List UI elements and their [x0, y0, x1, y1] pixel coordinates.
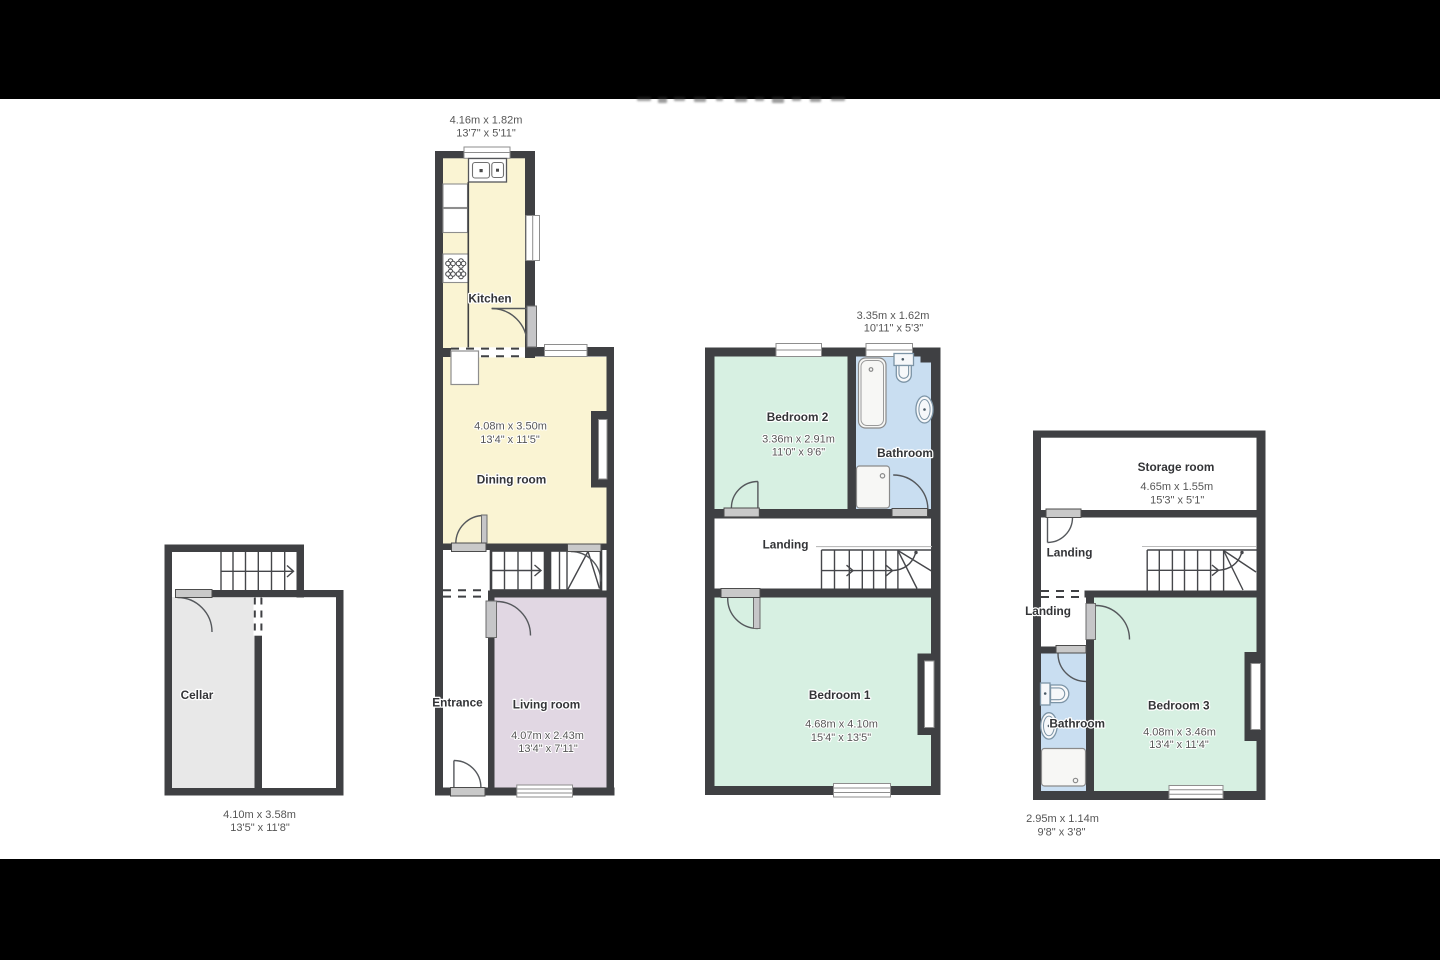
svg-text:Landing: Landing — [763, 538, 809, 552]
svg-text:13'7" x 5'11": 13'7" x 5'11" — [456, 127, 516, 139]
svg-text:13'4" x 7'11": 13'4" x 7'11" — [518, 743, 578, 755]
svg-text:4.08m x 3.50m: 4.08m x 3.50m — [474, 421, 547, 433]
svg-text:Kitchen: Kitchen — [468, 292, 511, 306]
svg-text:Bedroom 2: Bedroom 2 — [767, 410, 829, 424]
svg-text:13'4" x 11'4": 13'4" x 11'4" — [1149, 739, 1209, 751]
svg-text:Bedroom 3: Bedroom 3 — [1148, 698, 1210, 712]
svg-text:Bedroom 1: Bedroom 1 — [809, 688, 871, 702]
svg-text:3.36m x 2.91m: 3.36m x 2.91m — [762, 433, 835, 445]
svg-text:Storage room: Storage room — [1138, 460, 1215, 474]
svg-text:4.08m x 3.46m: 4.08m x 3.46m — [1143, 726, 1216, 738]
svg-text:15'3" x 5'1": 15'3" x 5'1" — [1150, 495, 1204, 507]
svg-text:Living room: Living room — [513, 698, 581, 712]
svg-text:4.65m x 1.55m: 4.65m x 1.55m — [1140, 481, 1213, 493]
svg-text:Entrance: Entrance — [432, 696, 483, 710]
svg-text:4.07m x 2.43m: 4.07m x 2.43m — [511, 730, 584, 742]
svg-text:4.68m x 4.10m: 4.68m x 4.10m — [805, 719, 878, 731]
svg-text:Cellar: Cellar — [181, 688, 214, 702]
svg-text:Landing: Landing — [1025, 604, 1071, 618]
svg-text:Bathroom: Bathroom — [1049, 717, 1105, 731]
svg-text:10'11" x 5'3": 10'11" x 5'3" — [864, 323, 924, 335]
svg-text:11'0" x 9'6": 11'0" x 9'6" — [772, 447, 825, 459]
svg-text:Dining room: Dining room — [477, 473, 546, 487]
svg-text:4.10m x 3.58m: 4.10m x 3.58m — [223, 809, 296, 821]
svg-text:9'8" x 3'8": 9'8" x 3'8" — [1037, 826, 1085, 838]
svg-text:Bathroom: Bathroom — [877, 446, 933, 460]
svg-text:13'5" x 11'8": 13'5" x 11'8" — [230, 822, 290, 834]
svg-text:3.35m x 1.62m: 3.35m x 1.62m — [857, 310, 930, 322]
svg-text:4.16m x 1.82m: 4.16m x 1.82m — [450, 114, 523, 126]
svg-text:2.95m x 1.14m: 2.95m x 1.14m — [1026, 813, 1099, 825]
svg-text:15'4" x 13'5": 15'4" x 13'5" — [811, 732, 871, 744]
svg-text:Landing: Landing — [1047, 546, 1093, 560]
svg-text:13'4" x 11'5": 13'4" x 11'5" — [480, 434, 540, 446]
